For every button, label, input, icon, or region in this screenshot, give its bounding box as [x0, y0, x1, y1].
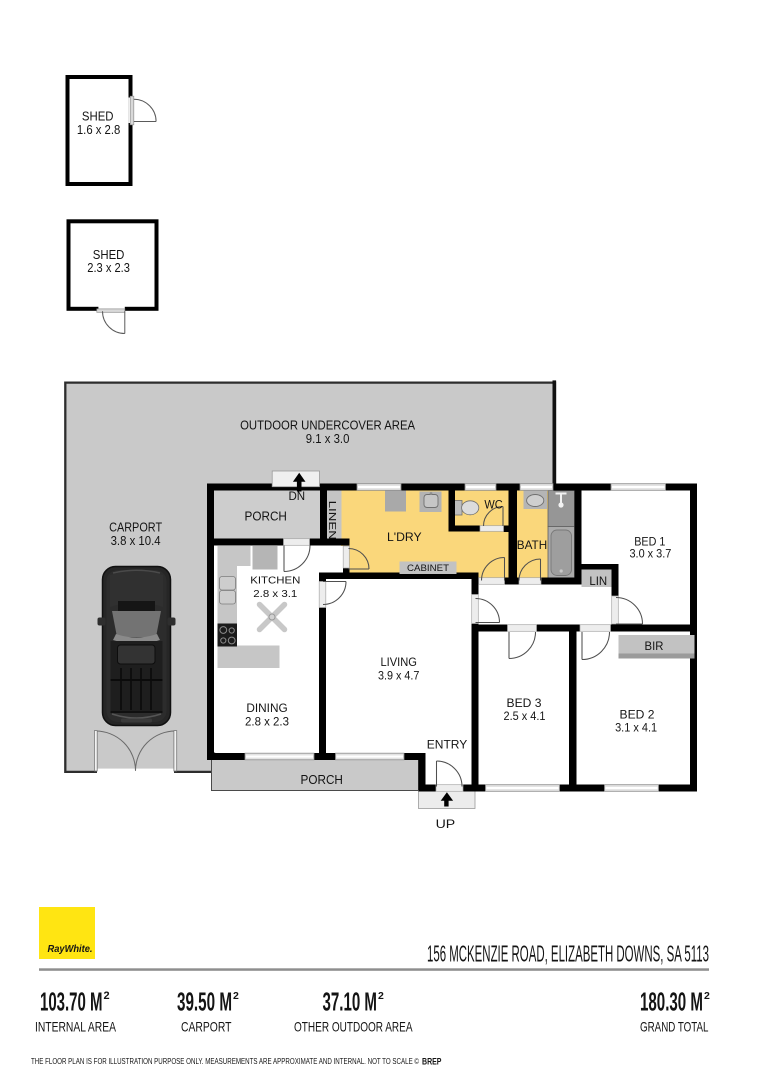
svg-text:BATH: BATH: [517, 538, 547, 552]
svg-text:CARPORT: CARPORT: [109, 521, 162, 535]
svg-text:LIVING: LIVING: [380, 655, 417, 669]
svg-text:L'DRY: L'DRY: [387, 530, 422, 544]
svg-text:ENTRY: ENTRY: [427, 738, 468, 752]
svg-text:37.10 M: 37.10 M: [323, 987, 378, 1017]
svg-text:2: 2: [104, 990, 110, 1002]
svg-text:2.8 x 2.3: 2.8 x 2.3: [245, 715, 289, 729]
svg-text:KITCHEN: KITCHEN: [250, 574, 300, 586]
svg-text:2: 2: [704, 990, 710, 1002]
svg-text:THE FLOOR PLAN IS FOR ILLUSTRA: THE FLOOR PLAN IS FOR ILLUSTRATION PURPO…: [31, 1057, 419, 1066]
svg-text:39.50 M: 39.50 M: [177, 987, 232, 1017]
svg-text:GRAND TOTAL: GRAND TOTAL: [640, 1019, 709, 1035]
svg-text:1.6 x 2.8: 1.6 x 2.8: [77, 122, 120, 137]
svg-text:LIN: LIN: [589, 576, 607, 588]
svg-text:OUTDOOR UNDERCOVER AREA: OUTDOOR UNDERCOVER AREA: [240, 419, 416, 433]
svg-text:2.3 x 2.3: 2.3 x 2.3: [87, 260, 130, 275]
svg-text:PORCH: PORCH: [245, 509, 287, 523]
svg-text:2: 2: [378, 990, 384, 1002]
svg-text:CABINET: CABINET: [407, 563, 449, 574]
svg-text:2.8 x 3.1: 2.8 x 3.1: [253, 588, 297, 600]
svg-text:CARPORT: CARPORT: [181, 1019, 232, 1035]
svg-text:PORCH: PORCH: [301, 773, 343, 787]
svg-text:OTHER OUTDOOR AREA: OTHER OUTDOOR AREA: [294, 1019, 413, 1035]
svg-text:3.1 x 4.1: 3.1 x 4.1: [615, 721, 657, 735]
svg-text:DINING: DINING: [246, 701, 287, 715]
svg-text:2.5 x 4.1: 2.5 x 4.1: [504, 709, 546, 723]
svg-text:WC: WC: [484, 498, 503, 512]
svg-text:DN: DN: [288, 489, 305, 503]
svg-text:3.8 x 10.4: 3.8 x 10.4: [111, 534, 161, 548]
svg-text:103.70 M: 103.70 M: [40, 987, 103, 1017]
svg-text:INTERNAL AREA: INTERNAL AREA: [35, 1019, 116, 1035]
svg-text:180.30 M: 180.30 M: [640, 987, 703, 1017]
svg-text:2: 2: [233, 990, 239, 1002]
svg-text:9.1 x 3.0: 9.1 x 3.0: [306, 432, 350, 446]
svg-text:156 MCKENZIE ROAD, ELIZABETH D: 156 MCKENZIE ROAD, ELIZABETH DOWNS, SA 5…: [427, 940, 709, 966]
svg-text:UP: UP: [436, 817, 456, 831]
svg-text:BED 2: BED 2: [620, 708, 655, 722]
svg-text:RayWhite.: RayWhite.: [48, 944, 93, 955]
svg-text:BED 3: BED 3: [507, 696, 542, 710]
svg-text:3.0 x 3.7: 3.0 x 3.7: [630, 547, 672, 561]
svg-text:3.9 x 4.7: 3.9 x 4.7: [378, 668, 420, 682]
svg-text:LINEN: LINEN: [326, 501, 338, 540]
svg-text:BREP: BREP: [422, 1057, 442, 1068]
svg-text:BIR: BIR: [645, 639, 664, 653]
